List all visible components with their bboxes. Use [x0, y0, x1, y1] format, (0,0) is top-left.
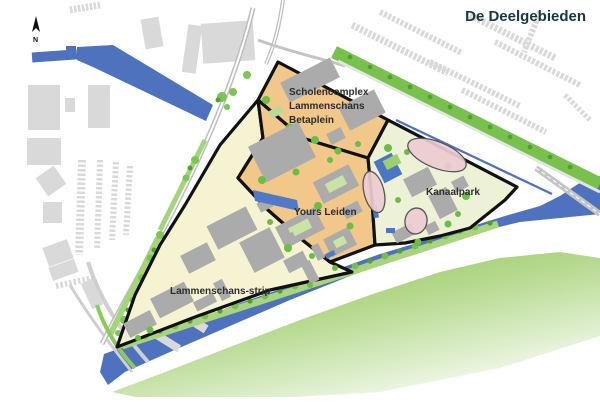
map-canvas: Scholencomplex Lammenschans Betaplein Yo… [0, 0, 600, 410]
label-scholencomplex-line1: Scholencomplex [289, 87, 369, 98]
north-arrow-icon: N [32, 16, 40, 44]
masterplan-map: Scholencomplex Lammenschans Betaplein Yo… [0, 0, 600, 410]
label-yours-leiden: Yours Leiden [294, 207, 357, 218]
label-kanaalpark: Kanaalpark [426, 187, 480, 198]
page-title: De Deelgebieden [465, 8, 586, 25]
label-scholencomplex-line3: Betaplein [289, 115, 334, 126]
bottom-margin [0, 397, 600, 410]
label-scholencomplex-line2: Lammenschans [289, 101, 365, 112]
north-label: N [33, 37, 38, 44]
label-lammenschans-strip: Lammenschans-strip [170, 286, 271, 297]
